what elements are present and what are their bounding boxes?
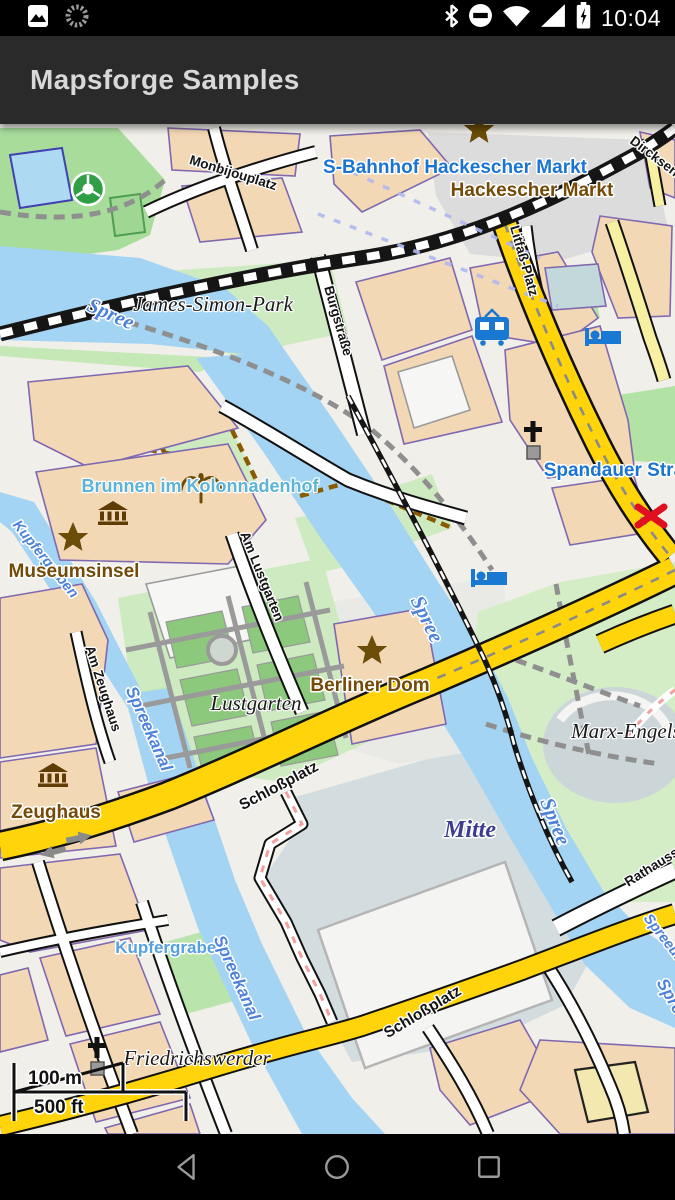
scale-imperial: 500 ft <box>34 1097 84 1118</box>
home-button[interactable] <box>307 1145 367 1189</box>
status-time: 10:04 <box>601 5 661 32</box>
map-canvas: Monbijouplatz S-Bahnhof Hackescher Markt… <box>0 124 675 1134</box>
bluetooth-icon <box>444 4 459 33</box>
battery-charging-icon <box>575 2 592 34</box>
gallery-icon <box>26 4 50 33</box>
app-title: Mapsforge Samples <box>30 64 300 96</box>
app-bar: Mapsforge Samples <box>0 36 675 124</box>
street-label: Spandauer Straße <box>544 460 675 481</box>
poi-label: Brunnen im Kolonnadenhof <box>82 476 320 496</box>
nav-bar <box>0 1134 675 1200</box>
district-label: Mitte <box>443 817 496 843</box>
poi-label: Zeughaus <box>11 802 101 823</box>
recents-button[interactable] <box>459 1145 519 1189</box>
spinner-icon <box>64 3 90 34</box>
poi-label: Berliner Dom <box>310 675 429 696</box>
status-bar: 10:04 <box>0 0 675 36</box>
station-label: S-Bahnhof Hackescher Markt <box>323 157 588 178</box>
poi-label: Museumsinsel <box>9 561 140 582</box>
back-button[interactable] <box>156 1145 216 1189</box>
area-label: Marx-Engels-Forum <box>570 719 675 743</box>
do-not-disturb-icon <box>468 3 493 33</box>
wifi-icon <box>502 4 531 33</box>
cell-signal-icon <box>540 4 566 33</box>
scale-metric: 100 m <box>28 1068 82 1089</box>
phone-screen: 10:04 Mapsforge Samples <box>0 0 675 1200</box>
map-view[interactable]: Monbijouplatz S-Bahnhof Hackescher Markt… <box>0 124 675 1134</box>
area-label: Friedrichswerder <box>122 1046 271 1070</box>
water-label: Kupfergraben <box>115 938 226 957</box>
area-label: Lustgarten <box>209 691 301 715</box>
soccer-pitch-icon <box>72 173 104 205</box>
poi-label: Hackescher Markt <box>451 180 614 201</box>
area-label: James-Simon-Park <box>133 292 293 316</box>
